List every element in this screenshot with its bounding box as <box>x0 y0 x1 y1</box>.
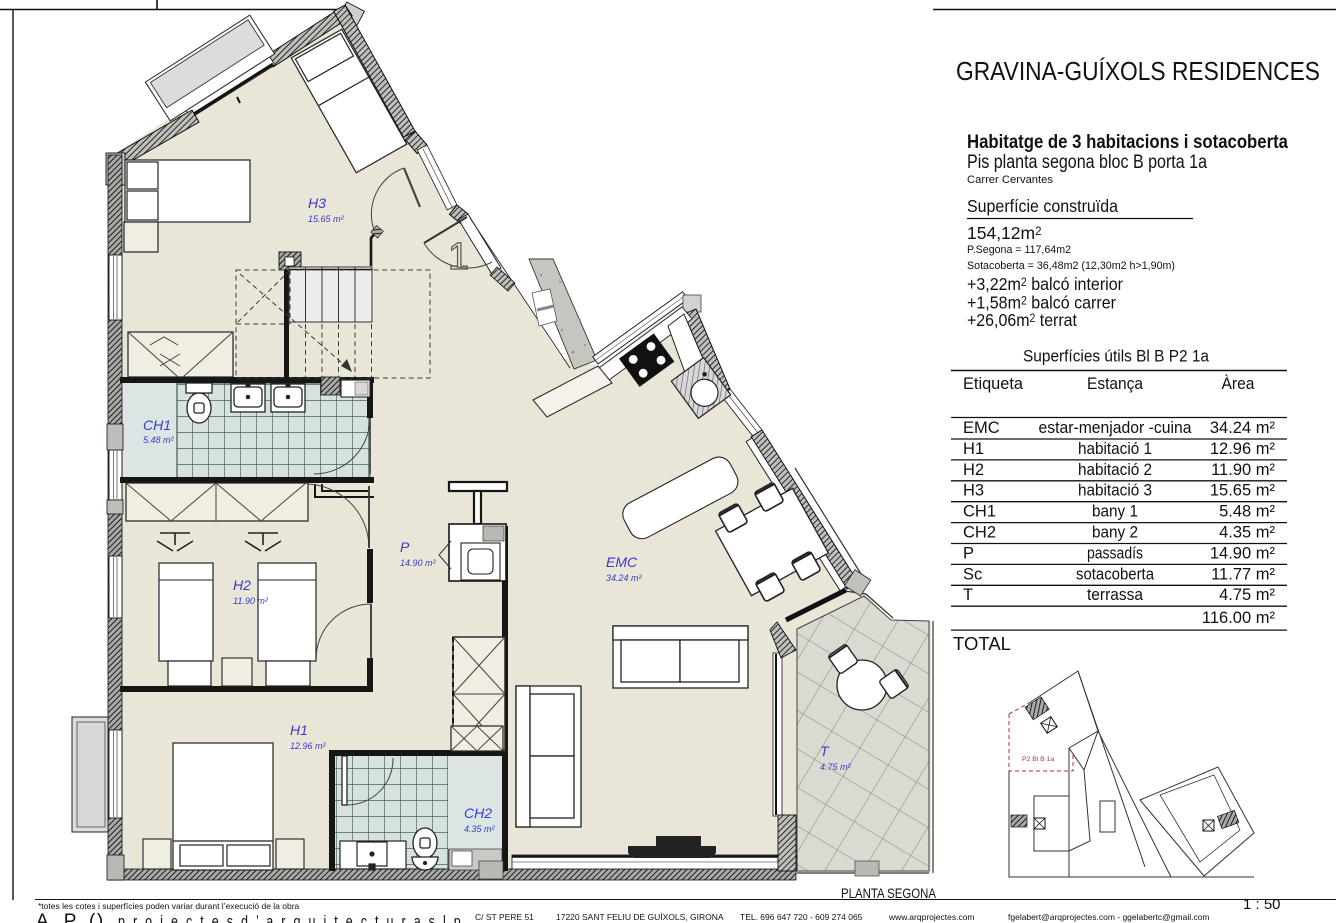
svg-text:1: 1 <box>448 236 469 278</box>
svg-text:EMC: EMC <box>606 554 638 570</box>
svg-text:EMC: EMC <box>963 419 1000 437</box>
svg-text:11.77 m²: 11.77 m² <box>1211 565 1275 583</box>
svg-text:sotacoberta: sotacoberta <box>1076 565 1155 583</box>
svg-text:H1: H1 <box>290 722 308 738</box>
svg-text:34.24 m²: 34.24 m² <box>1210 419 1276 437</box>
svg-text:4.35 m²: 4.35 m² <box>1219 524 1275 542</box>
svg-text:1 : 50: 1 : 50 <box>1243 896 1281 913</box>
svg-text:4.35 m²: 4.35 m² <box>464 824 496 834</box>
svg-text:estar-menjador -cuina: estar-menjador -cuina <box>1039 419 1193 437</box>
svg-text:Sc: Sc <box>963 565 982 583</box>
svg-text:11.90 m²: 11.90 m² <box>1211 461 1275 479</box>
svg-text:PLANTA SEGONA: PLANTA SEGONA <box>841 886 936 901</box>
svg-text:+26,06m2 terrat: +26,06m2 terrat <box>967 310 1077 330</box>
svg-text:GRAVINA-GUÍXOLS RESIDENCES: GRAVINA-GUÍXOLS RESIDENCES <box>956 56 1320 86</box>
svg-text:34.24 m²: 34.24 m² <box>606 573 643 583</box>
svg-text:Superfícies útils Bl B P2 1a: Superfícies útils Bl B P2 1a <box>1023 348 1210 366</box>
svg-text:P: P <box>400 539 410 555</box>
svg-text:A. P. (): A. P. () <box>36 911 105 923</box>
svg-text:passadís: passadís <box>1087 544 1143 562</box>
svg-text:CH1: CH1 <box>963 503 996 521</box>
svg-text:habitació 1: habitació 1 <box>1078 440 1152 458</box>
svg-text:TOTAL: TOTAL <box>953 633 1011 654</box>
svg-text:17220 SANT FELIU DE GUÍXOLS, G: 17220 SANT FELIU DE GUÍXOLS, GIRONA <box>556 912 724 922</box>
svg-text:T: T <box>820 743 830 759</box>
svg-text:H2: H2 <box>963 461 984 479</box>
svg-text:12.96 m²: 12.96 m² <box>290 741 327 751</box>
svg-text:Etiqueta: Etiqueta <box>963 375 1024 393</box>
svg-text:4.75 m²: 4.75 m² <box>1219 586 1275 604</box>
svg-text:H3: H3 <box>308 195 326 211</box>
svg-text:Habitatge de 3 habitacions i s: Habitatge de 3 habitacions i sotacoberta <box>967 132 1288 153</box>
svg-text:Carrer Cervantes: Carrer Cervantes <box>967 174 1054 186</box>
svg-text:TEL. 696 647 720 - 609 274 065: TEL. 696 647 720 - 609 274 065 <box>740 912 863 922</box>
svg-text:p r o j e c t e s d ’ a r q: p r o j e c t e s d ’ a r q u i t e c t … <box>118 913 463 923</box>
svg-text:C/ ST PERE 51: C/ ST PERE 51 <box>475 912 534 922</box>
svg-text:P: P <box>963 544 974 562</box>
svg-text:11.90 m²: 11.90 m² <box>233 596 269 606</box>
svg-text:terrassa: terrassa <box>1087 586 1144 604</box>
svg-text:4.75 m²: 4.75 m² <box>820 762 852 772</box>
svg-text:H3: H3 <box>963 482 984 500</box>
svg-text:fgelabert@arqprojectes.com - g: fgelabert@arqprojectes.com - ggelabertc@… <box>1008 912 1210 922</box>
svg-text:116.00 m²: 116.00 m² <box>1202 609 1276 627</box>
svg-text:15.65 m²: 15.65 m² <box>308 214 345 224</box>
svg-text:H1: H1 <box>963 440 984 458</box>
svg-text:Pis planta segona bloc B porta: Pis planta segona bloc B porta 1a <box>967 152 1207 173</box>
svg-text:154,12m2: 154,12m2 <box>967 223 1042 243</box>
svg-text:CH2: CH2 <box>963 524 996 542</box>
svg-text:H2: H2 <box>233 577 251 593</box>
svg-text:CH2: CH2 <box>464 805 492 821</box>
svg-text:habitació 3: habitació 3 <box>1078 482 1152 500</box>
svg-text:Sotacoberta = 36,48m2 (12,30m2: Sotacoberta = 36,48m2 (12,30m2 h>1,90m) <box>967 260 1175 272</box>
svg-text:P2 Bl B 1a: P2 Bl B 1a <box>1022 756 1054 763</box>
svg-text:T: T <box>963 586 973 604</box>
svg-text:P.Segona = 117,64m2: P.Segona = 117,64m2 <box>967 244 1071 256</box>
svg-text:Àrea: Àrea <box>1222 374 1256 393</box>
svg-text:CH1: CH1 <box>143 417 171 433</box>
svg-text:www.arqprojectes.com: www.arqprojectes.com <box>888 912 975 922</box>
svg-text:12.96 m²: 12.96 m² <box>1210 440 1276 458</box>
svg-text:+3,22m2 balcó interior: +3,22m2 balcó interior <box>967 274 1123 294</box>
svg-text:14.90 m²: 14.90 m² <box>400 558 437 568</box>
svg-text:bany 2: bany 2 <box>1092 524 1138 542</box>
svg-text:15.65 m²: 15.65 m² <box>1210 482 1276 500</box>
svg-text:5.48 m²: 5.48 m² <box>1219 503 1275 521</box>
svg-text:Superfície construïda: Superfície construïda <box>967 196 1118 216</box>
svg-text:14.90 m²: 14.90 m² <box>1210 544 1276 562</box>
svg-text:5.48 m²: 5.48 m² <box>143 435 175 445</box>
svg-text:*totes les cotes i superfícies: *totes les cotes i superfícies poden var… <box>38 901 300 911</box>
svg-text:habitació 2: habitació 2 <box>1078 461 1152 479</box>
svg-text:bany 1: bany 1 <box>1092 503 1138 521</box>
svg-text:Estança: Estança <box>1087 375 1144 393</box>
